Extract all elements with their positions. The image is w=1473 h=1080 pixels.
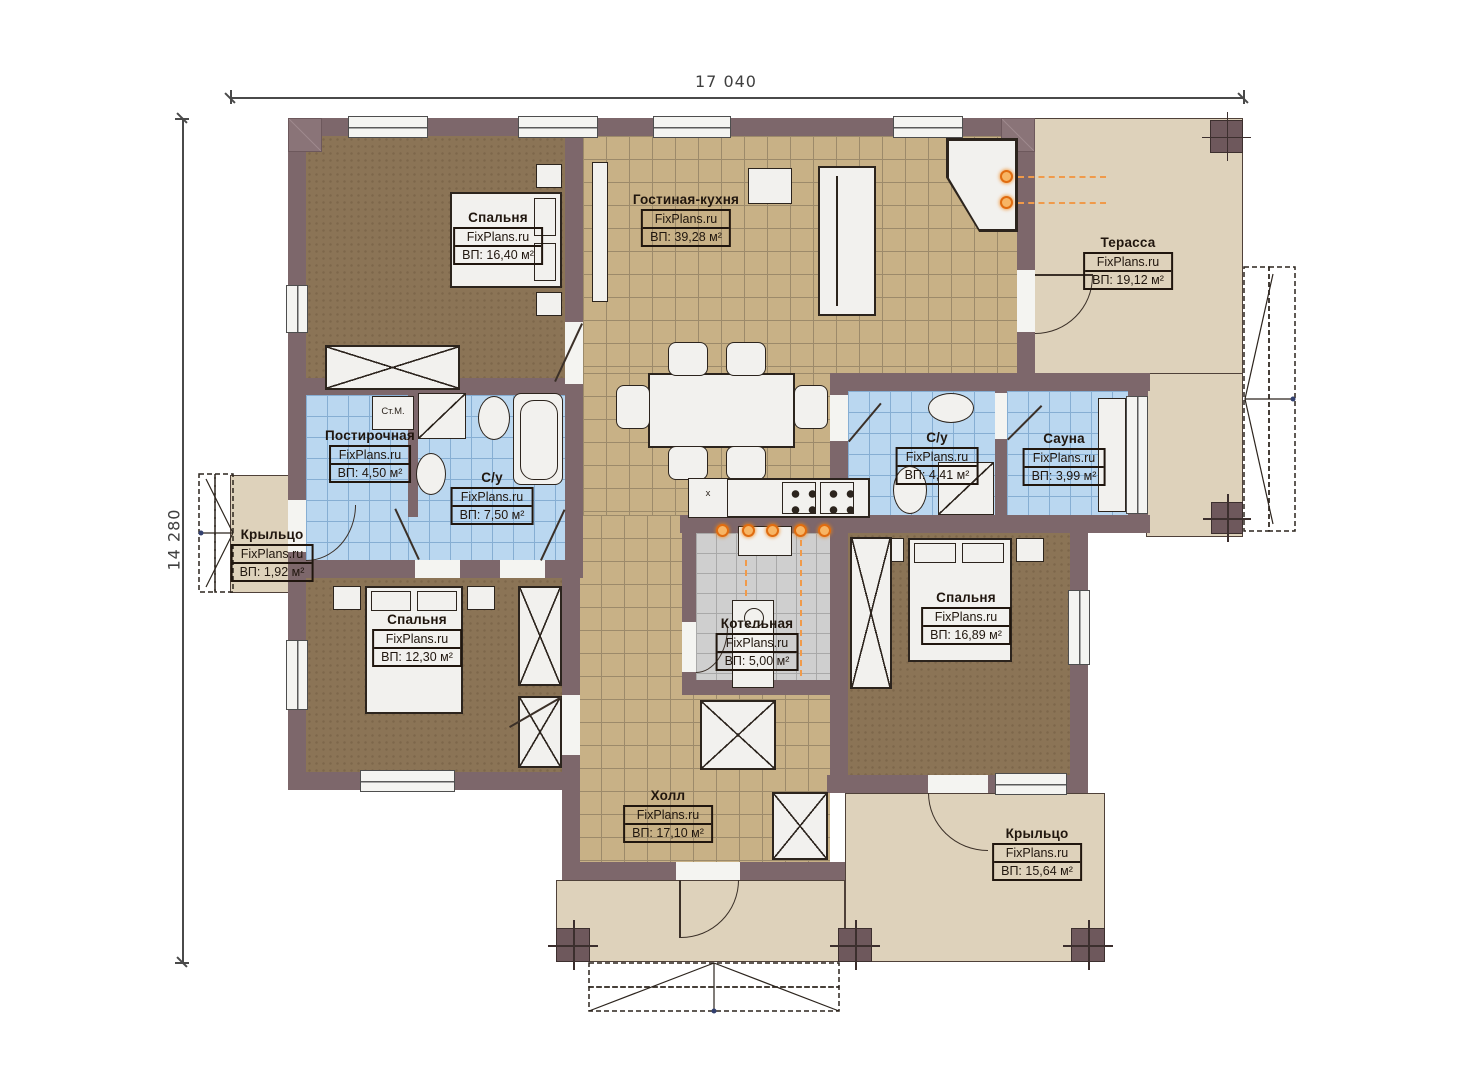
room-area: ВП: 17,10 м² <box>625 823 711 841</box>
radiator-icon <box>818 524 831 537</box>
room-label-hall: Холл FixPlans.ru ВП: 17,10 м² <box>623 788 713 843</box>
window <box>348 116 428 138</box>
chair <box>726 342 766 376</box>
brand-watermark: FixPlans.ru <box>233 546 312 562</box>
room-info-box: FixPlans.ru ВП: 4,50 м² <box>329 445 412 483</box>
heating-pipe <box>800 540 802 676</box>
wall-corner <box>288 118 322 152</box>
room-area: ВП: 15,64 м² <box>994 861 1080 879</box>
room-area: ВП: 19,12 м² <box>1085 270 1171 288</box>
room-info-box: FixPlans.ru ВП: 19,12 м² <box>1083 252 1173 290</box>
door-opening <box>562 695 580 755</box>
room-label-porch-left: Крыльцо FixPlans.ru ВП: 1,92 м² <box>231 527 314 582</box>
brand-watermark: FixPlans.ru <box>643 211 729 227</box>
room-info-box: FixPlans.ru ВП: 16,40 м² <box>453 227 543 265</box>
brand-watermark: FixPlans.ru <box>994 845 1080 861</box>
door-opening <box>682 622 696 672</box>
dimension-height-label: 14 280 <box>164 509 183 571</box>
room-info-box: FixPlans.ru ВП: 1,92 м² <box>231 544 314 582</box>
sofa-back-line <box>824 176 838 306</box>
radiator-icon <box>1000 196 1013 209</box>
nightstand <box>467 586 495 610</box>
chair <box>616 385 650 429</box>
radiator-icon <box>1000 170 1013 183</box>
brand-watermark: FixPlans.ru <box>455 229 541 245</box>
brand-watermark: FixPlans.ru <box>1085 254 1171 270</box>
room-area: ВП: 3,99 м² <box>1025 466 1104 484</box>
chair <box>794 385 828 429</box>
wardrobe <box>772 792 828 860</box>
room-label-porch-right: Крыльцо FixPlans.ru ВП: 15,64 м² <box>992 826 1082 881</box>
room-info-box: FixPlans.ru ВП: 12,30 м² <box>372 629 462 667</box>
door-opening <box>995 393 1007 439</box>
room-label-bedroom2: Спальня FixPlans.ru ВП: 12,30 м² <box>372 612 462 667</box>
wardrobe <box>850 537 892 689</box>
window <box>360 770 455 792</box>
room-label-laundry: Постирочная FixPlans.ru ВП: 4,50 м² <box>325 428 415 483</box>
window <box>653 116 731 138</box>
door-opening <box>928 775 988 793</box>
dimension-line-top <box>230 97 1243 99</box>
room-name: Крыльцо <box>231 527 314 542</box>
room-name: Котельная <box>716 616 799 631</box>
console-table <box>748 168 792 204</box>
brand-watermark: FixPlans.ru <box>331 447 410 463</box>
room-name: Спальня <box>921 590 1011 605</box>
pillow <box>371 591 411 611</box>
room-area: ВП: 16,40 м² <box>455 245 541 263</box>
chair <box>668 342 708 376</box>
window <box>1126 396 1148 514</box>
room-label-bathroom1: С/у FixPlans.ru ВП: 7,50 м² <box>451 470 534 525</box>
nightstand <box>536 292 562 316</box>
room-info-box: FixPlans.ru ВП: 5,00 м² <box>716 633 799 671</box>
dining-table <box>648 373 795 448</box>
room-area: ВП: 16,89 м² <box>923 625 1009 643</box>
window <box>518 116 598 138</box>
heating-pipe <box>1018 202 1106 204</box>
room-label-bathroom2: С/у FixPlans.ru ВП: 4,41 м² <box>896 430 979 485</box>
brand-watermark: FixPlans.ru <box>625 807 711 823</box>
column <box>1210 120 1243 153</box>
floor-plan-canvas: 17 040 14 280 <box>0 0 1473 1080</box>
nightstand <box>1016 538 1044 562</box>
room-name: Терасса <box>1083 235 1173 250</box>
pillow <box>417 591 457 611</box>
door-opening <box>500 560 545 578</box>
radiator-icon <box>742 524 755 537</box>
room-name: Спальня <box>372 612 462 627</box>
steps-left <box>198 473 234 593</box>
pillow <box>914 543 956 563</box>
bathtub-inner <box>520 400 558 480</box>
brand-watermark: FixPlans.ru <box>374 631 460 647</box>
room-name: Спальня <box>453 210 543 225</box>
shower <box>418 393 466 439</box>
room-label-bedroom1: Спальня FixPlans.ru ВП: 16,40 м² <box>453 210 543 265</box>
room-label-boiler: Котельная FixPlans.ru ВП: 5,00 м² <box>716 616 799 671</box>
room-info-box: FixPlans.ru ВП: 4,41 м² <box>896 447 979 485</box>
column <box>1071 928 1105 962</box>
pillow <box>962 543 1004 563</box>
room-label-sauna: Сауна FixPlans.ru ВП: 3,99 м² <box>1023 431 1106 486</box>
room-info-box: FixPlans.ru ВП: 17,10 м² <box>623 805 713 843</box>
column <box>556 928 590 962</box>
nightstand <box>333 586 361 610</box>
room-name: Гостиная-кухня <box>633 192 739 207</box>
wardrobe <box>700 700 776 770</box>
stove <box>820 482 854 514</box>
room-area: ВП: 4,41 м² <box>898 465 977 483</box>
door-opening <box>830 395 848 441</box>
room-area: ВП: 4,50 м² <box>331 463 410 481</box>
steps-bottom <box>588 962 840 1014</box>
washing-machine-label: Ст.М. <box>372 406 414 417</box>
room-name: Сауна <box>1023 431 1106 446</box>
window <box>286 285 308 333</box>
door-opening <box>415 560 460 578</box>
room-info-box: FixPlans.ru ВП: 15,64 м² <box>992 843 1082 881</box>
brand-watermark: FixPlans.ru <box>718 635 797 651</box>
radiator-icon <box>794 524 807 537</box>
window <box>995 773 1067 795</box>
column <box>838 928 872 962</box>
wardrobe <box>325 345 460 390</box>
window <box>893 116 963 138</box>
room-name: С/у <box>451 470 534 485</box>
room-label-living-kitchen: Гостиная-кухня FixPlans.ru ВП: 39,28 м² <box>633 192 739 247</box>
washbasin <box>928 393 974 423</box>
dimension-width-label: 17 040 <box>695 72 757 91</box>
room-info-box: FixPlans.ru ВП: 16,89 м² <box>921 607 1011 645</box>
nightstand <box>536 164 562 188</box>
heating-pipe <box>1018 176 1106 178</box>
column <box>1211 502 1243 534</box>
door-opening <box>676 862 740 880</box>
steps-right <box>1243 266 1297 532</box>
toilet <box>478 396 510 440</box>
room-area: ВП: 7,50 м² <box>453 505 532 523</box>
room-label-bedroom3: Спальня FixPlans.ru ВП: 16,89 м² <box>921 590 1011 645</box>
door-leaf <box>679 880 681 938</box>
room-area: ВП: 12,30 м² <box>374 647 460 665</box>
room-info-box: FixPlans.ru ВП: 7,50 м² <box>451 487 534 525</box>
wall <box>565 395 583 578</box>
window <box>1068 590 1090 665</box>
brand-watermark: FixPlans.ru <box>898 449 977 465</box>
room-area: ВП: 39,28 м² <box>643 227 729 245</box>
radiator-icon <box>716 524 729 537</box>
door-opening <box>1017 270 1035 332</box>
wall <box>830 515 848 793</box>
stove <box>782 482 816 514</box>
brand-watermark: FixPlans.ru <box>1025 450 1104 466</box>
room-area: ВП: 5,00 м² <box>718 651 797 669</box>
brand-watermark: FixPlans.ru <box>923 609 1009 625</box>
wall <box>830 373 1150 391</box>
brand-watermark: FixPlans.ru <box>453 489 532 505</box>
washbasin <box>416 453 446 495</box>
radiator-icon <box>766 524 779 537</box>
wall <box>1017 136 1035 373</box>
chair <box>668 446 708 480</box>
room-label-terrace: Терасса FixPlans.ru ВП: 19,12 м² <box>1083 235 1173 290</box>
room-name: Холл <box>623 788 713 803</box>
room-name: Крыльцо <box>992 826 1082 841</box>
room-info-box: FixPlans.ru ВП: 39,28 м² <box>641 209 731 247</box>
room-info-box: FixPlans.ru ВП: 3,99 м² <box>1023 448 1106 486</box>
wardrobe <box>518 586 562 686</box>
sink-mark: x <box>688 488 728 499</box>
wardrobe <box>518 696 562 768</box>
tv-unit <box>592 162 608 302</box>
window <box>286 640 308 710</box>
room-area: ВП: 1,92 м² <box>233 562 312 580</box>
room-name: С/у <box>896 430 979 445</box>
chair <box>726 446 766 480</box>
room-name: Постирочная <box>325 428 415 443</box>
